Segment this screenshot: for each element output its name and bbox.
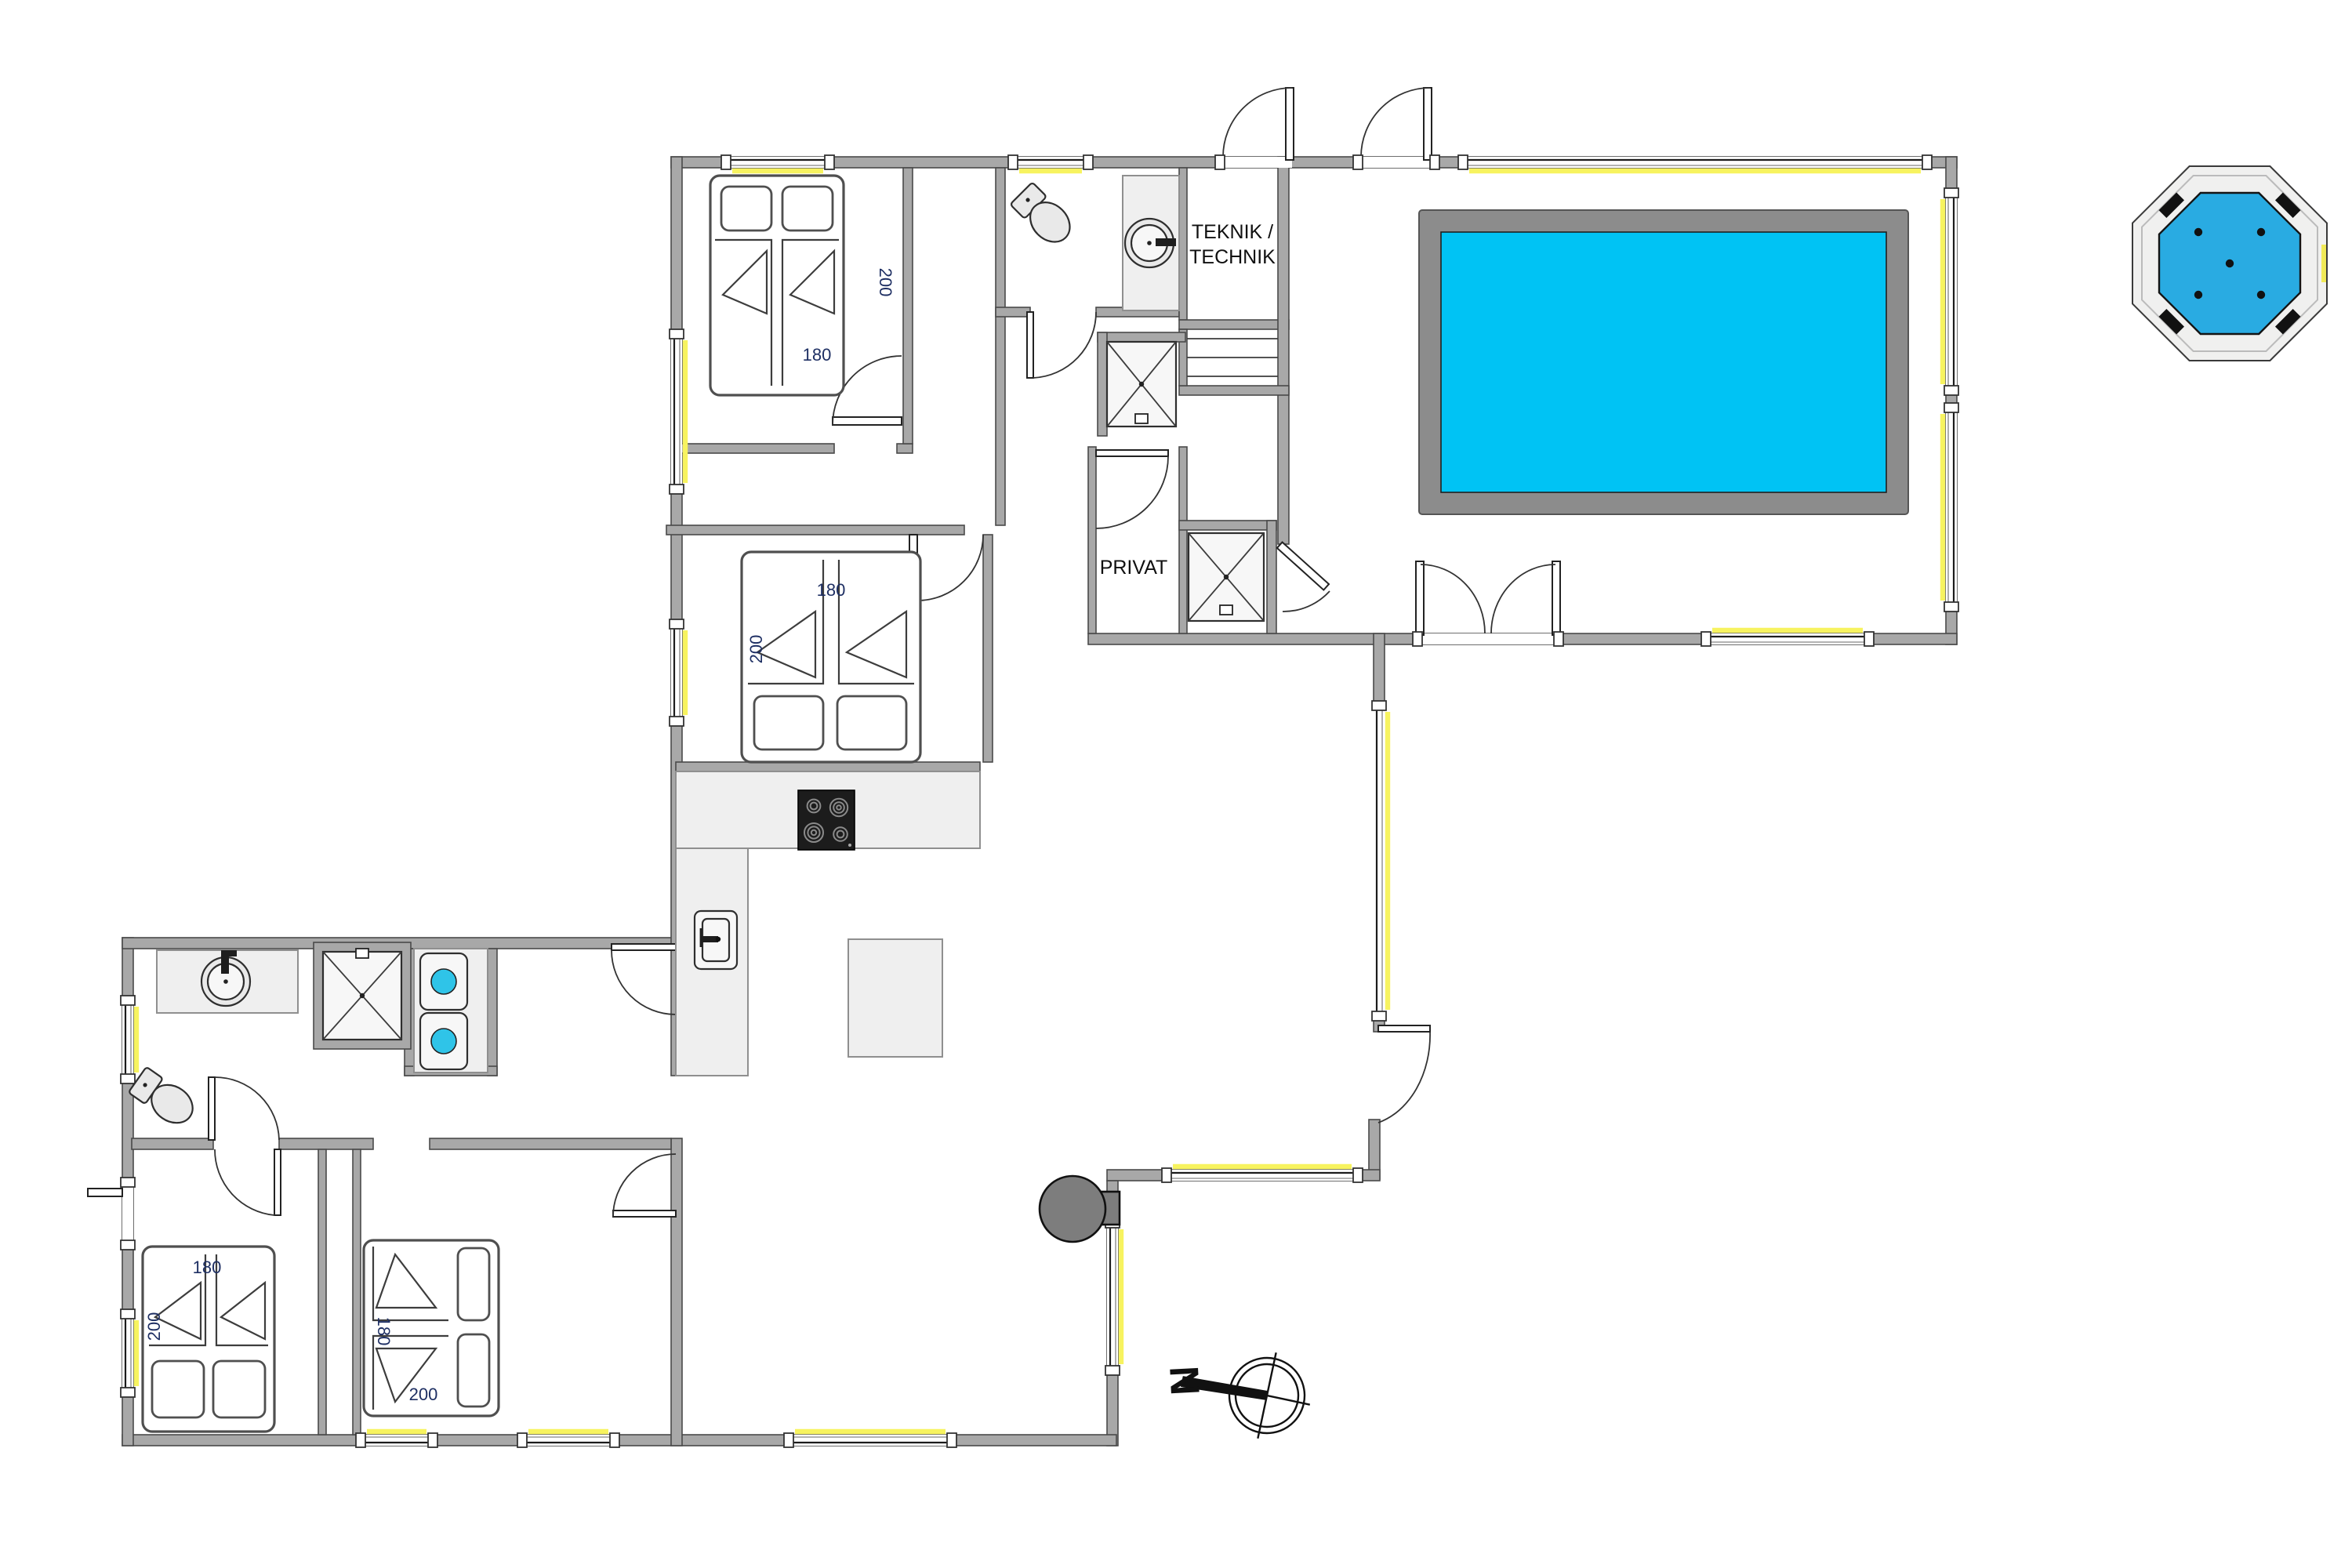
compass: N <box>1150 1330 1319 1447</box>
washer-dryer-stack <box>414 949 488 1073</box>
toilet-icon <box>128 1065 200 1131</box>
hot-tub <box>2132 166 2327 361</box>
floor-plan-page: N TEKNIK / TECHNIK PRIVAT 200 180 180 20… <box>0 0 2352 1568</box>
window <box>121 1309 136 1397</box>
shower-drain-icon <box>1135 414 1148 423</box>
privat-door <box>1096 450 1168 528</box>
faucet-icon <box>1156 238 1176 246</box>
bed-width-label: 180 <box>193 1258 222 1277</box>
shower-2 <box>1189 533 1264 621</box>
toilet-icon <box>1009 181 1078 250</box>
window <box>1943 403 1958 612</box>
window <box>1162 1167 1363 1182</box>
bed-length-label: 200 <box>144 1312 164 1341</box>
stairs <box>1187 339 1278 376</box>
bed-length-label: 200 <box>876 268 895 297</box>
bed-width-label: 180 <box>374 1317 394 1346</box>
bed-width-label: 180 <box>817 580 846 600</box>
window <box>1105 1218 1121 1375</box>
window <box>721 155 834 171</box>
window <box>517 1432 619 1447</box>
exterior-door <box>1353 88 1439 169</box>
wing-bathroom-door <box>209 1077 279 1140</box>
bathroom-door <box>1027 312 1096 378</box>
wing-bathroom <box>128 942 488 1131</box>
window <box>670 329 685 494</box>
privat-label: PRIVAT <box>1100 557 1168 579</box>
teknik-label-line1: TEKNIK / <box>1192 221 1273 243</box>
bed-width-label: 180 <box>803 345 832 365</box>
window <box>1008 155 1093 171</box>
window <box>1372 701 1388 1021</box>
hall-door <box>612 944 676 1014</box>
bathroom-sink-counter <box>1123 176 1179 310</box>
shower-drain-icon <box>1220 605 1232 615</box>
compass-north-label: N <box>1160 1365 1207 1397</box>
teknik-label-line2: TECHNIK <box>1189 246 1276 268</box>
window <box>121 996 136 1083</box>
floor-plan-drawing: N TEKNIK / TECHNIK PRIVAT 200 180 180 20… <box>0 0 2352 1568</box>
dryer-door-icon <box>431 1029 456 1054</box>
kitchen-sink-icon <box>695 911 737 969</box>
cooktop-icon <box>798 790 855 850</box>
window <box>670 619 685 726</box>
bed-length-label: 200 <box>746 635 766 664</box>
bed-length-label: 200 <box>409 1385 438 1404</box>
window <box>784 1432 956 1447</box>
window <box>1458 155 1932 171</box>
kitchen-island <box>848 939 942 1057</box>
shower-1 <box>1107 342 1176 426</box>
kitchen <box>676 771 980 1076</box>
exterior-door <box>1215 88 1294 169</box>
bottom-middle-bedroom-door <box>613 1154 676 1217</box>
swimming-pool <box>1419 210 1908 514</box>
window <box>1943 188 1958 395</box>
terrace-door <box>1378 1025 1430 1123</box>
window <box>356 1432 437 1447</box>
shower-3 <box>314 942 411 1049</box>
bottom-left-bedroom-door <box>215 1149 281 1215</box>
washer-door-icon <box>431 969 456 994</box>
entrance-door <box>88 1178 135 1250</box>
stairs-door <box>1277 543 1330 612</box>
window <box>1701 630 1874 646</box>
